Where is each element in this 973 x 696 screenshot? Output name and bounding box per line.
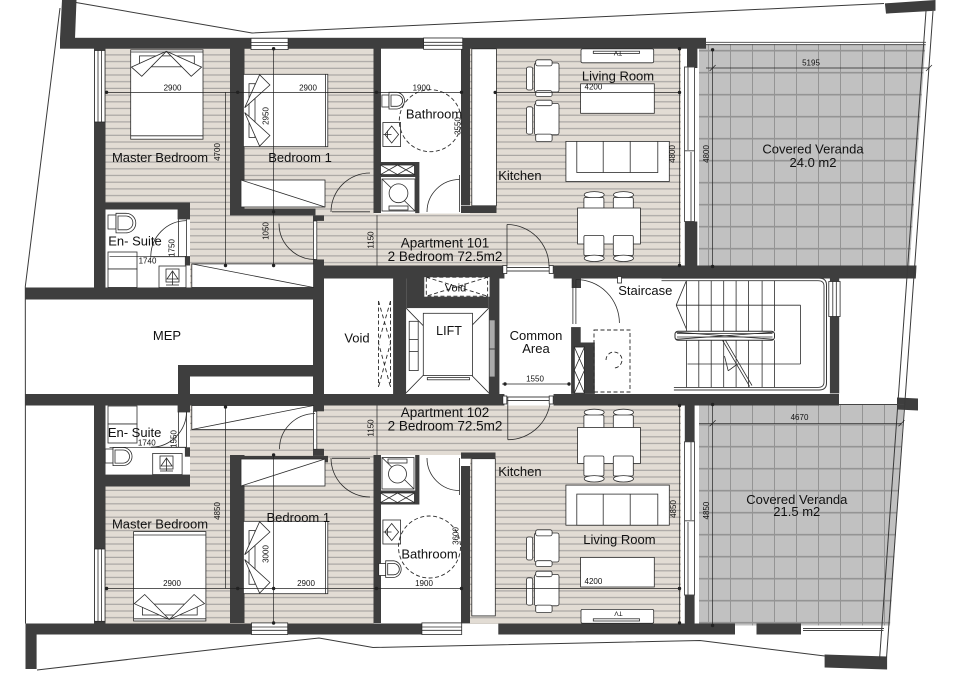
svg-text:4200: 4200 xyxy=(585,577,603,586)
svg-text:4200: 4200 xyxy=(585,83,603,92)
svg-text:Void: Void xyxy=(344,331,369,346)
svg-text:Kitchen: Kitchen xyxy=(498,464,541,479)
svg-text:Living Room: Living Room xyxy=(582,69,654,84)
svg-text:3600: 3600 xyxy=(451,527,460,545)
svg-text:4850: 4850 xyxy=(213,502,222,520)
svg-text:LIFT: LIFT xyxy=(436,324,462,338)
svg-text:1050: 1050 xyxy=(261,222,270,240)
svg-text:Master Bedroom: Master Bedroom xyxy=(112,150,208,165)
svg-text:2 Bedroom 72.5m2: 2 Bedroom 72.5m2 xyxy=(388,419,503,434)
svg-text:1900: 1900 xyxy=(413,83,431,92)
svg-text:4700: 4700 xyxy=(213,143,222,161)
svg-text:4800: 4800 xyxy=(668,145,677,163)
svg-text:Kitchen: Kitchen xyxy=(498,168,541,183)
svg-text:Void: Void xyxy=(445,283,466,295)
svg-text:Bathroom: Bathroom xyxy=(406,107,462,122)
svg-text:TV: TV xyxy=(614,610,623,617)
svg-text:En- Suite: En- Suite xyxy=(108,233,161,248)
svg-text:4850: 4850 xyxy=(669,500,678,518)
svg-text:2900: 2900 xyxy=(299,83,317,92)
svg-text:1750: 1750 xyxy=(167,239,176,257)
svg-text:Living Room: Living Room xyxy=(583,532,655,547)
svg-text:21.5 m2: 21.5 m2 xyxy=(773,504,820,519)
svg-text:1150: 1150 xyxy=(367,419,376,437)
svg-text:2950: 2950 xyxy=(261,107,270,125)
svg-text:2900: 2900 xyxy=(164,83,182,92)
svg-text:1550: 1550 xyxy=(526,375,544,384)
svg-text:2 Bedroom 72.5m2: 2 Bedroom 72.5m2 xyxy=(388,249,503,264)
svg-text:24.0 m2: 24.0 m2 xyxy=(790,155,837,170)
svg-text:Staircase: Staircase xyxy=(618,283,672,298)
svg-text:1900: 1900 xyxy=(415,579,433,588)
svg-text:4800: 4800 xyxy=(702,145,711,163)
svg-text:1550: 1550 xyxy=(170,430,179,448)
svg-text:Bedroom 1: Bedroom 1 xyxy=(268,150,332,165)
svg-text:En- Suite: En- Suite xyxy=(108,425,161,440)
svg-text:3000: 3000 xyxy=(261,545,270,563)
svg-text:Master Bedroom: Master Bedroom xyxy=(112,517,208,532)
svg-text:1150: 1150 xyxy=(367,231,376,249)
svg-text:4670: 4670 xyxy=(791,413,809,422)
svg-text:MEP: MEP xyxy=(153,328,181,343)
svg-text:Area: Area xyxy=(522,341,550,356)
svg-text:2900: 2900 xyxy=(297,579,315,588)
svg-text:Bathroom: Bathroom xyxy=(401,546,457,561)
svg-text:4850: 4850 xyxy=(702,501,711,519)
svg-text:1740: 1740 xyxy=(139,257,157,266)
svg-text:TV: TV xyxy=(613,49,622,56)
svg-text:5195: 5195 xyxy=(802,59,820,68)
svg-text:2900: 2900 xyxy=(163,579,181,588)
svg-text:Bedroom 1: Bedroom 1 xyxy=(267,510,331,525)
